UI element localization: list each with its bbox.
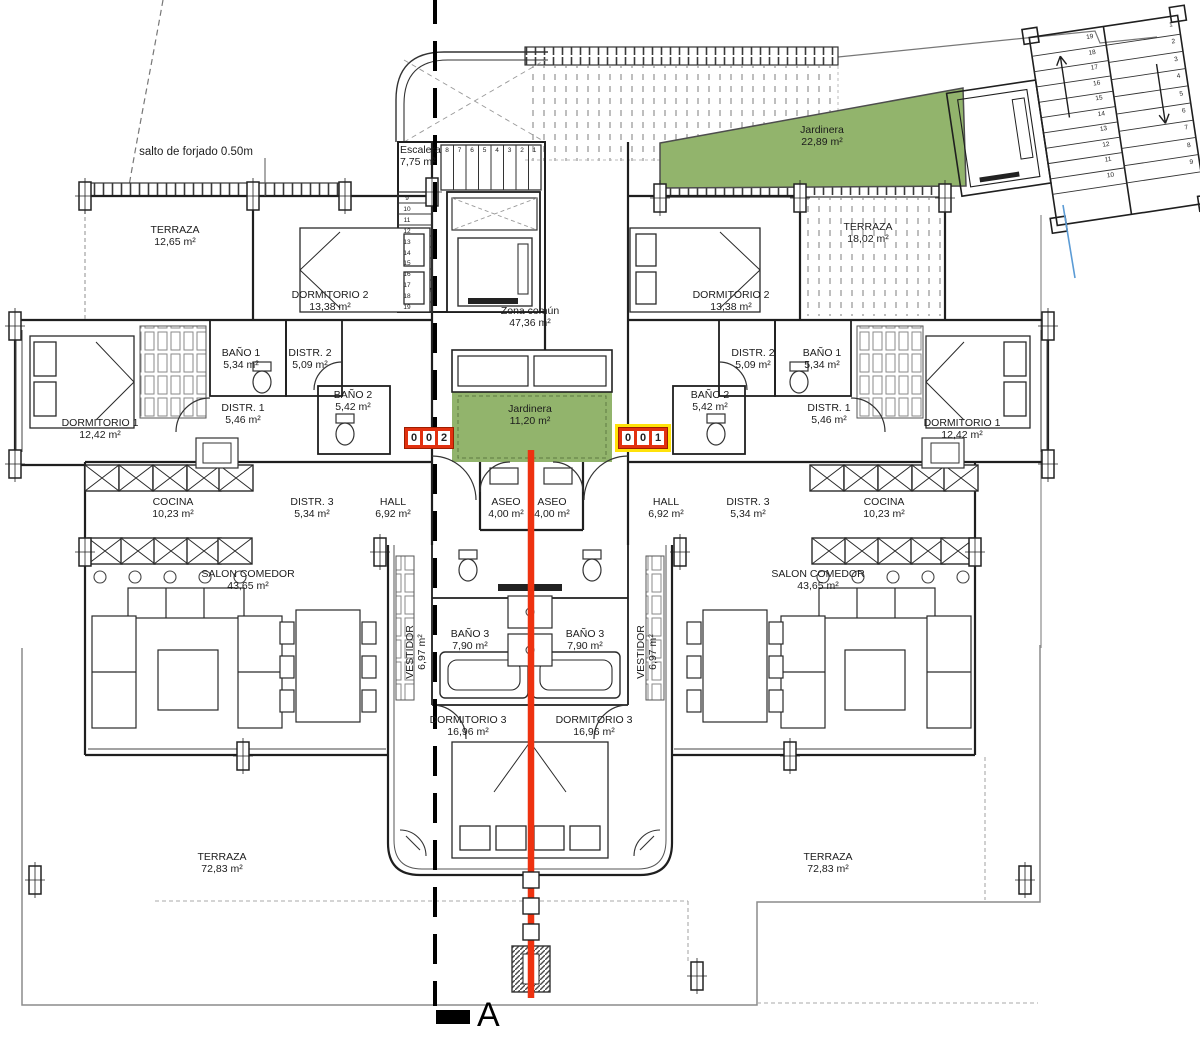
label-bano3-right: BAÑO 37,90 m² [566,628,605,652]
label-vestidor-right: VESTIDOR6,97 m² [635,625,659,679]
label-distr1-left: DISTR. 15,46 m² [221,402,264,426]
floor-plan: salto de forjado 0.50m Escalera7,75 m² T… [0,0,1200,1041]
label-aseo-left: ASEO4,00 m² [488,496,524,520]
unit-badge-002: 002 [404,427,454,449]
ne-stair-block-numbers: 19181716151413121110 123456789 [938,0,1200,254]
label-distr3-left: DISTR. 35,34 m² [290,496,333,520]
label-dormitorio2-left: DORMITORIO 213,38 m² [292,289,369,313]
label-bano1-left: BAÑO 15,34 m² [222,347,261,371]
label-cocina-left: COCINA10,23 m² [152,496,193,520]
label-terraza-ne: TERRAZA18,02 m² [843,221,892,245]
label-escalera: Escalera7,75 m² [400,144,441,168]
note-salto-de-forjado: salto de forjado 0.50m [139,146,253,159]
label-bano3-left: BAÑO 37,90 m² [451,628,490,652]
label-dormitorio1-right: DORMITORIO 112,42 m² [924,417,1001,441]
label-bano1-right: BAÑO 15,34 m² [803,347,842,371]
section-marker-a: A [477,996,500,1035]
label-jardinera-mid: Jardinera11,20 m² [508,403,552,427]
unit-badge-001: 001 [618,427,668,449]
label-cocina-right: COCINA10,23 m² [863,496,904,520]
label-dormitorio3-left: DORMITORIO 316,96 m² [430,714,507,738]
label-distr1-right: DISTR. 15,46 m² [807,402,850,426]
label-salon-left: SALON COMEDOR43,65 m² [201,568,294,592]
label-hall-left: HALL6,92 m² [375,496,411,520]
label-bano2-left: BAÑO 25,42 m² [334,389,373,413]
label-jardinera-top: Jardinera22,89 m² [800,124,844,148]
label-distr3-right: DISTR. 35,34 m² [726,496,769,520]
label-terraza-sw: TERRAZA72,83 m² [197,851,246,875]
label-terraza-nw: TERRAZA12,65 m² [150,224,199,248]
unit-badge-001-frame: 001 [615,424,671,452]
label-terraza-se: TERRAZA72,83 m² [803,851,852,875]
label-dormitorio3-right: DORMITORIO 316,96 m² [556,714,633,738]
label-dormitorio2-right: DORMITORIO 213,38 m² [693,289,770,313]
label-dormitorio1-left: DORMITORIO 112,42 m² [62,417,139,441]
label-hall-right: HALL6,92 m² [648,496,684,520]
label-vestidor-left: VESTIDOR6,97 m² [404,625,428,679]
label-bano2-right: BAÑO 25,42 m² [691,389,730,413]
label-aseo-right: ASEO4,00 m² [534,496,570,520]
label-salon-right: SALON COMEDOR43,65 m² [771,568,864,592]
label-distr2-right: DISTR. 25,09 m² [731,347,774,371]
label-distr2-left: DISTR. 25,09 m² [288,347,331,371]
label-zona-comun: Zona común47,36 m² [501,305,559,329]
